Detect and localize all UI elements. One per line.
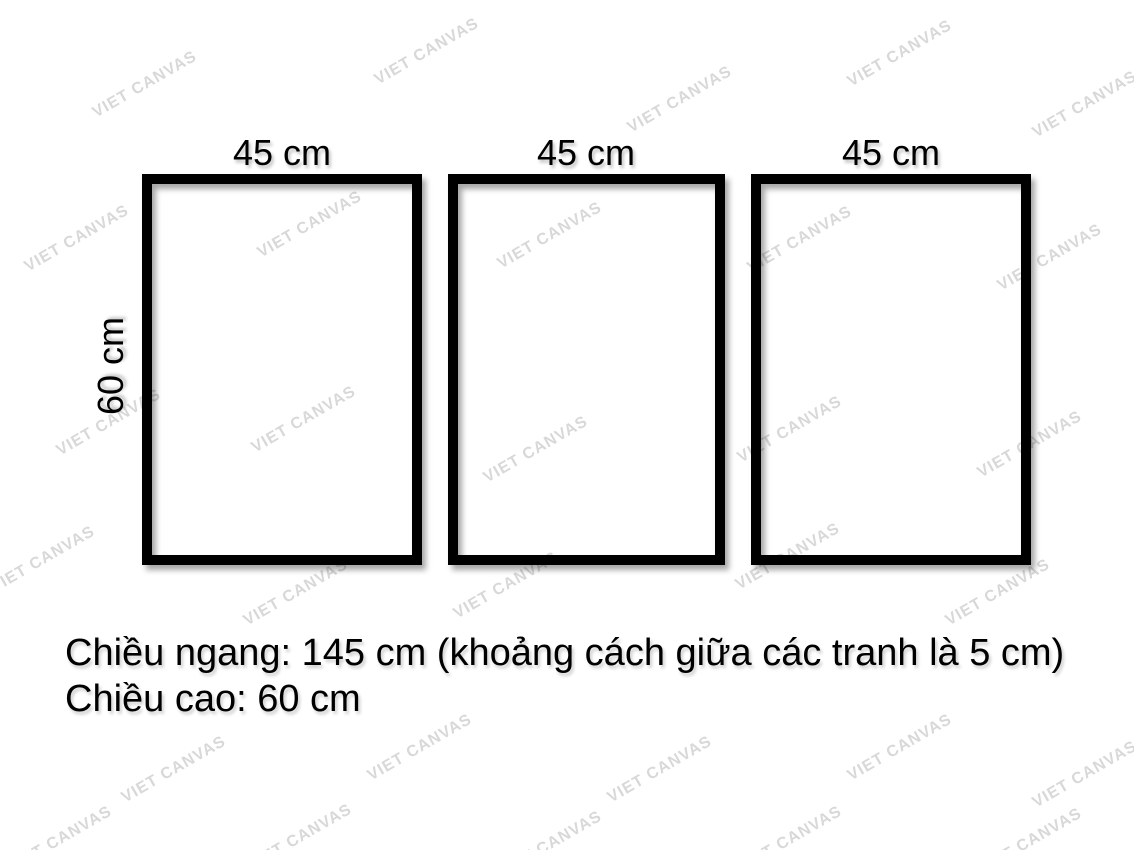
watermark-text: VIET CANVAS (943, 556, 1054, 630)
dimension-diagram: VIET CANVASVIET CANVASVIET CANVASVIET CA… (0, 0, 1134, 850)
watermark-text: VIET CANVAS (735, 803, 846, 850)
canvas-frame-3 (751, 174, 1031, 565)
watermark-text: VIET CANVAS (372, 15, 483, 89)
watermark-text: VIET CANVAS (605, 733, 716, 807)
watermark-text: VIET CANVAS (119, 733, 230, 807)
watermark-text: VIET CANVAS (22, 202, 133, 276)
watermark-text: VIET CANVAS (845, 17, 956, 91)
watermark-text: VIET CANVAS (1030, 68, 1134, 142)
watermark-text: VIET CANVAS (90, 48, 201, 122)
caption-line-height: Chiều cao: 60 cm (65, 676, 1064, 722)
watermark-text: VIET CANVAS (241, 556, 352, 630)
watermark-text: VIET CANVAS (365, 711, 476, 785)
caption: Chiều ngang: 145 cm (khoảng cách giữa cá… (65, 630, 1064, 722)
watermark-text: VIET CANVAS (1030, 738, 1134, 812)
caption-line-width: Chiều ngang: 145 cm (khoảng cách giữa cá… (65, 630, 1064, 676)
canvas-frame-1 (142, 174, 422, 565)
frame2-width-label: 45 cm (537, 133, 635, 173)
canvas-frame-2 (448, 174, 725, 565)
frame-height-label: 60 cm (91, 317, 131, 415)
frame3-width-label: 45 cm (842, 133, 940, 173)
frame1-width-label: 45 cm (233, 133, 331, 173)
watermark-text: VIET CANVAS (0, 523, 98, 597)
watermark-text: VIET CANVAS (495, 808, 606, 850)
watermark-text: VIET CANVAS (625, 63, 736, 137)
watermark-text: VIET CANVAS (975, 805, 1086, 850)
watermark-text: VIET CANVAS (245, 801, 356, 850)
watermark-text: VIET CANVAS (5, 803, 116, 850)
watermark-text: VIET CANVAS (845, 711, 956, 785)
